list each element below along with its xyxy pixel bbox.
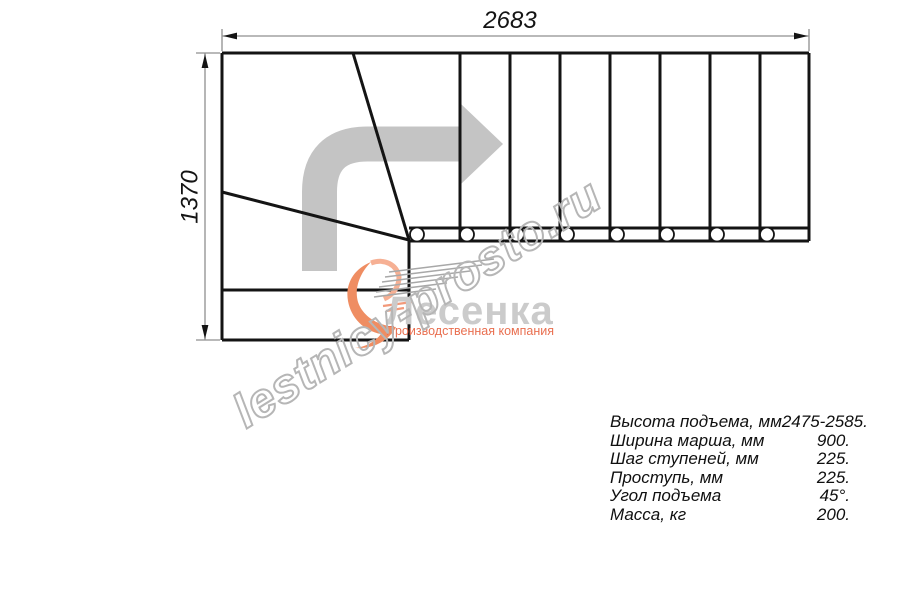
spec-label: Ширина марша, мм <box>610 432 764 451</box>
spec-value: 2475-2585. <box>782 413 868 432</box>
spec-row: Высота подъема, мм 2475-2585. <box>610 413 850 432</box>
staircase-plan-page: 2683 1370 <box>0 0 900 600</box>
spec-row: Шаг ступеней, мм 225. <box>610 450 850 469</box>
spec-label: Угол подъема <box>610 487 721 506</box>
spec-row: Ширина марша, мм 900. <box>610 432 850 451</box>
specs-table: Высота подъема, мм 2475-2585. Ширина мар… <box>610 413 850 525</box>
baluster-circles <box>410 228 774 242</box>
direction-arrow-icon <box>320 104 504 271</box>
spec-row: Угол подъема 45°. <box>610 487 850 506</box>
spec-label: Высота подъема, мм <box>610 413 782 432</box>
spec-label: Проступь, мм <box>610 469 723 488</box>
dimension-width: 2683 <box>222 7 809 51</box>
spec-value: 225. <box>817 450 850 469</box>
logo-tagline: Производственная компания <box>386 325 554 338</box>
spec-label: Шаг ступеней, мм <box>610 450 759 469</box>
spec-row: Проступь, мм 225. <box>610 469 850 488</box>
spec-value: 45°. <box>820 487 850 506</box>
dimension-height-label: 1370 <box>176 170 203 224</box>
spec-value: 900. <box>817 432 850 451</box>
spec-label: Масса, кг <box>610 506 686 525</box>
dimension-width-label: 2683 <box>482 7 537 34</box>
dimension-height: 1370 <box>176 53 220 340</box>
spec-row: Масса, кг 200. <box>610 506 850 525</box>
spec-value: 225. <box>817 469 850 488</box>
spec-value: 200. <box>817 506 850 525</box>
